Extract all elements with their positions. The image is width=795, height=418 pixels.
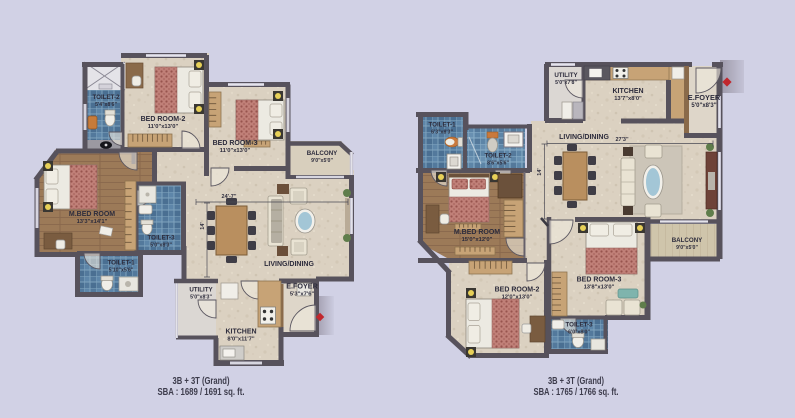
- svg-text:9'0"x5'0": 9'0"x5'0": [311, 158, 333, 164]
- svg-text:BALCONY: BALCONY: [672, 237, 703, 244]
- svg-text:M.BED ROOM: M.BED ROOM: [454, 229, 500, 236]
- svg-text:3B + 3T (Grand): 3B + 3T (Grand): [548, 376, 604, 387]
- svg-text:UTILITY: UTILITY: [189, 287, 213, 294]
- svg-text:TOILET-1: TOILET-1: [428, 122, 456, 129]
- svg-text:8'6"x5'6": 8'6"x5'6": [487, 161, 509, 167]
- svg-text:SBA : 1765 / 1766 sq. ft.: SBA : 1765 / 1766 sq. ft.: [534, 387, 619, 398]
- svg-text:5'0"x8'3": 5'0"x8'3": [150, 243, 172, 249]
- svg-text:BED ROOM-2: BED ROOM-2: [495, 287, 540, 294]
- svg-text:LIVING/DINING: LIVING/DINING: [264, 261, 314, 268]
- svg-text:TOILET-1: TOILET-1: [107, 260, 135, 267]
- svg-text:3B + 3T (Grand): 3B + 3T (Grand): [173, 376, 230, 387]
- svg-text:UTILITY: UTILITY: [554, 72, 578, 79]
- svg-text:TOILET-2: TOILET-2: [484, 153, 512, 160]
- svg-text:11'0"x13'0": 11'0"x13'0": [148, 124, 179, 130]
- svg-text:14': 14': [537, 168, 543, 176]
- svg-text:9'0"x5'0": 9'0"x5'0": [676, 245, 698, 251]
- svg-text:11'0"x13'0": 11'0"x13'0": [220, 148, 251, 154]
- svg-text:TOILET-2: TOILET-2: [92, 94, 120, 101]
- svg-text:5'10"x5'6": 5'10"x5'6": [109, 268, 134, 274]
- svg-text:SBA : 1689 / 1691 sq. ft.: SBA : 1689 / 1691 sq. ft.: [158, 387, 245, 398]
- svg-text:TOILET-3: TOILET-3: [147, 235, 175, 242]
- svg-text:6'0"x8'0": 6'0"x8'0": [568, 330, 590, 336]
- svg-text:13'8"x13'0": 13'8"x13'0": [584, 285, 615, 291]
- svg-text:12'0"x13'0": 12'0"x13'0": [502, 295, 533, 301]
- svg-text:24'-7": 24'-7": [222, 194, 237, 200]
- svg-text:5'3"x7'6": 5'3"x7'6": [290, 292, 315, 298]
- svg-text:BED ROOM-3: BED ROOM-3: [577, 277, 622, 284]
- svg-text:BALCONY: BALCONY: [307, 150, 338, 157]
- svg-text:13'7"x8'0": 13'7"x8'0": [614, 96, 642, 102]
- svg-text:BED ROOM-2: BED ROOM-2: [141, 116, 186, 123]
- svg-text:6'3"x8'3": 6'3"x8'3": [431, 130, 453, 136]
- svg-text:5'0"x8'3": 5'0"x8'3": [691, 103, 716, 109]
- svg-text:KITCHEN: KITCHEN: [225, 329, 256, 336]
- svg-text:BED ROOM-3: BED ROOM-3: [213, 140, 258, 147]
- svg-text:M.BED ROOM: M.BED ROOM: [69, 211, 115, 218]
- svg-text:KITCHEN: KITCHEN: [612, 88, 643, 95]
- svg-text:14': 14': [200, 222, 206, 230]
- svg-text:E.FOYER: E.FOYER: [688, 93, 721, 102]
- svg-text:5'0"x8'3": 5'0"x8'3": [190, 295, 212, 301]
- svg-text:TOILET-3: TOILET-3: [565, 322, 593, 329]
- svg-text:5'4"x8'6": 5'4"x8'6": [95, 102, 117, 108]
- svg-text:LIVING/DINING: LIVING/DINING: [559, 134, 609, 141]
- svg-text:E.FOYER: E.FOYER: [286, 282, 318, 291]
- svg-text:5'0"x7'8": 5'0"x7'8": [555, 80, 577, 86]
- svg-text:27'3": 27'3": [615, 137, 628, 143]
- svg-text:15'0"x12'0": 15'0"x12'0": [462, 237, 493, 243]
- svg-text:8'0"x11'7": 8'0"x11'7": [227, 337, 255, 343]
- svg-text:13'3"x14'1": 13'3"x14'1": [77, 219, 108, 225]
